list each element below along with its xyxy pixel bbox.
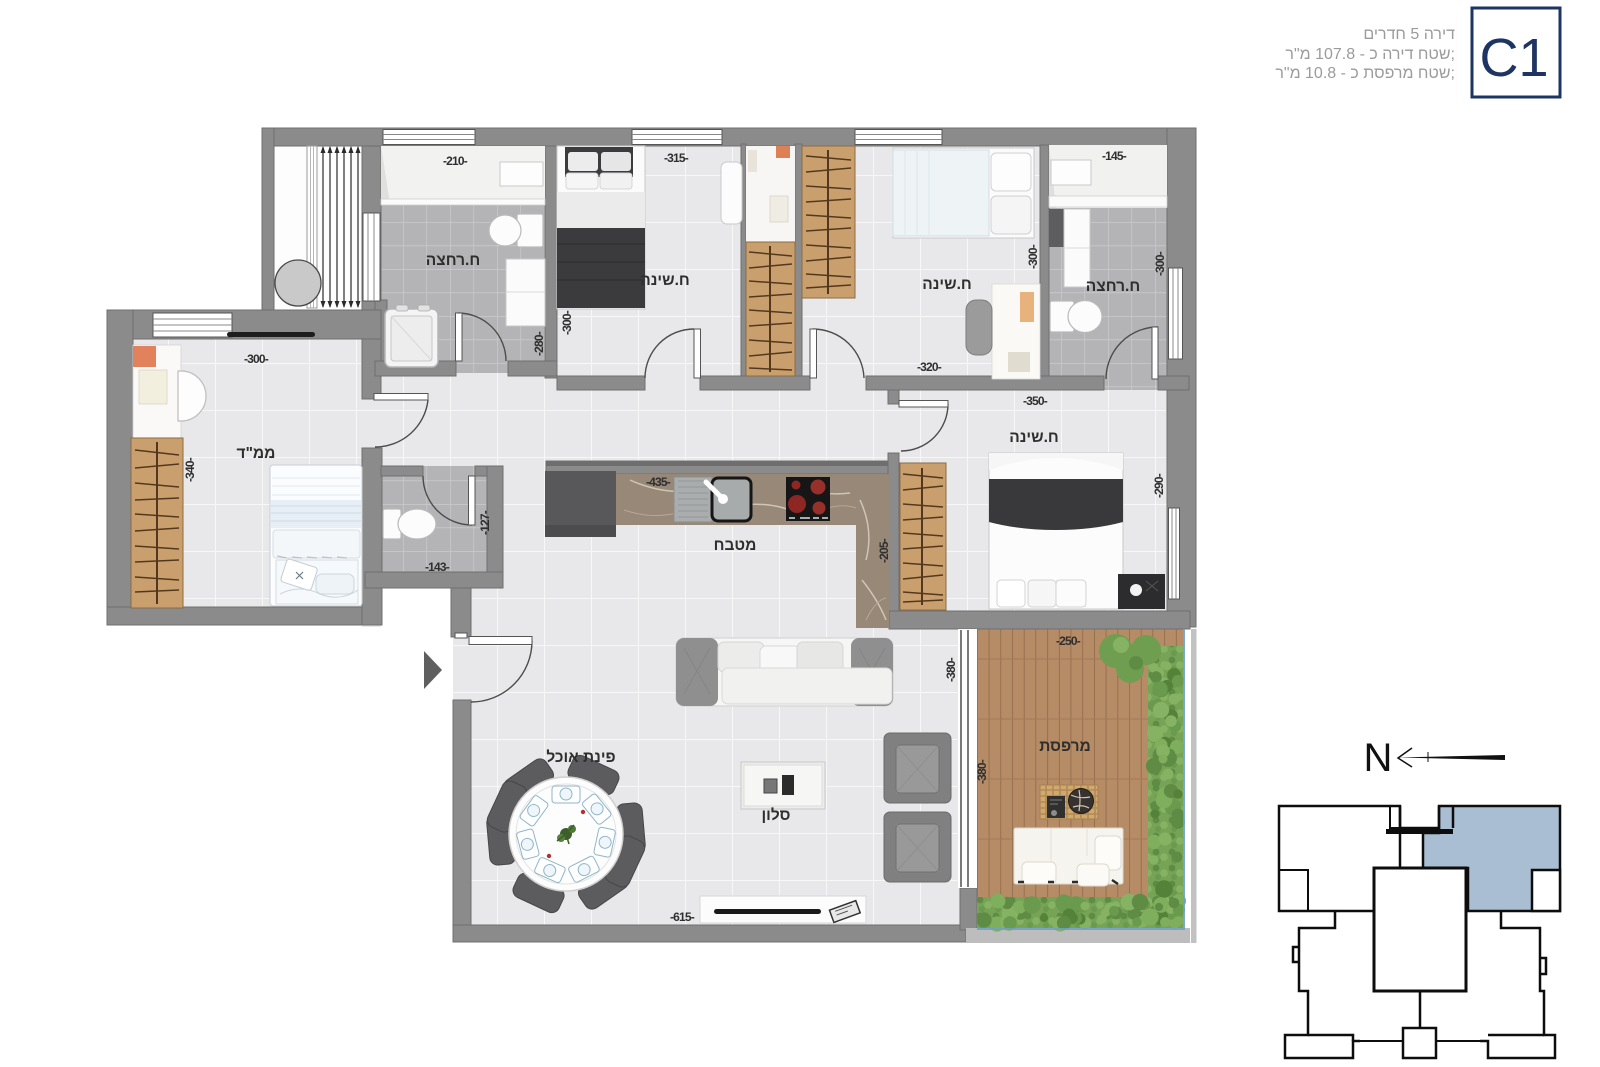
svg-text:-280-: -280- xyxy=(532,331,546,356)
svg-text:-300-: -300- xyxy=(244,352,269,366)
svg-text:-320-: -320- xyxy=(917,360,942,374)
svg-text:-143-: -143- xyxy=(425,560,450,574)
svg-text:-250-: -250- xyxy=(1056,634,1081,648)
svg-text:-380-: -380- xyxy=(944,657,958,682)
svg-text:ח.שינה: ח.שינה xyxy=(922,276,971,293)
svg-text:מרפסת: מרפסת xyxy=(1039,738,1091,755)
svg-text:ח.שינה: ח.שינה xyxy=(1009,429,1058,446)
svg-text:-315-: -315- xyxy=(664,151,689,165)
svg-text:ח.רחצה: ח.רחצה xyxy=(426,252,480,269)
svg-text:סלון: סלון xyxy=(761,807,790,824)
svg-text:-300-: -300- xyxy=(1153,251,1167,276)
svg-text:-435-: -435- xyxy=(646,475,671,489)
svg-text:-205-: -205- xyxy=(877,538,891,563)
svg-text:-300-: -300- xyxy=(1026,244,1040,269)
svg-text:-340-: -340- xyxy=(183,457,197,482)
svg-text:דירה 5 חדרים: דירה 5 חדרים xyxy=(1363,26,1455,43)
svg-text:-290-: -290- xyxy=(1152,473,1166,498)
svg-text:שטח מרפסת כ - 10.8 מ"ר;: שטח מרפסת כ - 10.8 מ"ר; xyxy=(1275,65,1455,82)
svg-text:מטבח: מטבח xyxy=(714,537,757,554)
svg-text:-350-: -350- xyxy=(1023,394,1048,408)
svg-text:ממ"ד: ממ"ד xyxy=(237,445,276,462)
svg-text:ח.רחצה: ח.רחצה xyxy=(1086,278,1140,295)
svg-text:C1: C1 xyxy=(1479,28,1548,88)
svg-text:פינת אוכל: פינת אוכל xyxy=(546,749,615,766)
svg-text:-380-: -380- xyxy=(975,759,989,784)
svg-text:-145-: -145- xyxy=(1102,149,1127,163)
svg-text:-127-: -127- xyxy=(478,510,492,535)
svg-text:שטח דירה כ - 107.8 מ"ר;: שטח דירה כ - 107.8 מ"ר; xyxy=(1285,46,1455,63)
svg-text:-615-: -615- xyxy=(670,910,695,924)
svg-text:-300-: -300- xyxy=(560,310,574,335)
svg-text:-210-: -210- xyxy=(443,154,468,168)
svg-text:ח.שינה: ח.שינה xyxy=(640,272,689,289)
svg-text:N: N xyxy=(1364,736,1393,780)
